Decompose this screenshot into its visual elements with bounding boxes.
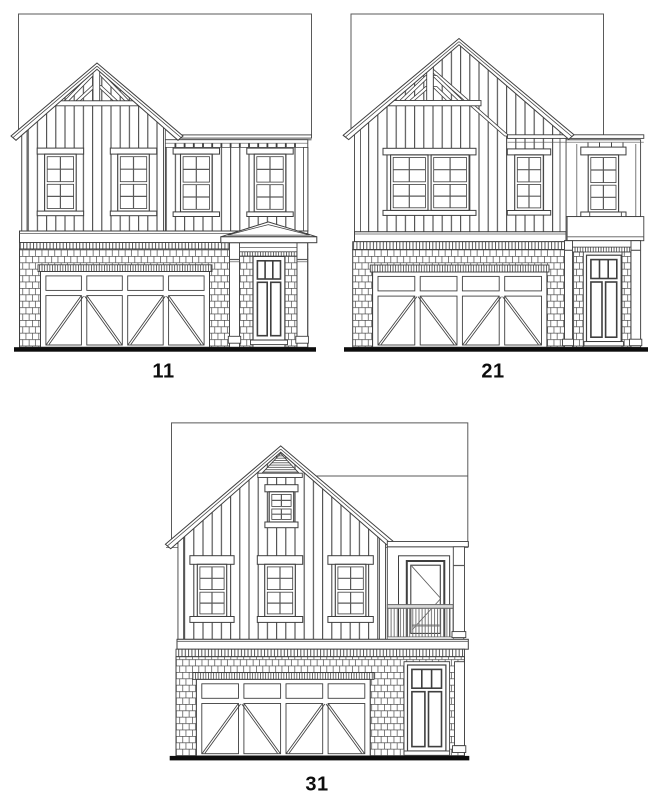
- svg-text:21: 21: [481, 361, 504, 383]
- svg-text:31: 31: [305, 774, 328, 796]
- svg-text:11: 11: [152, 361, 174, 383]
